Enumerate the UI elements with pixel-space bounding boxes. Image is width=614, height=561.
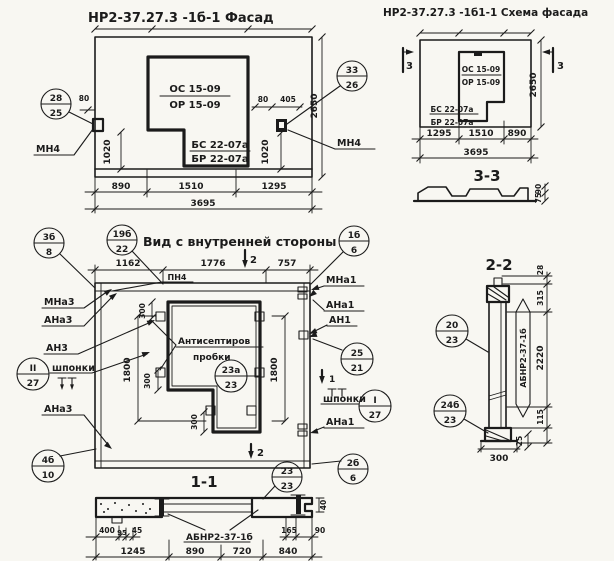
facade-window-mark-bottom: ОР 15-09 [169,100,220,111]
section-1-1-profile [96,495,312,523]
callout-21: 21 [351,364,364,374]
callout-27-right: 27 [369,411,382,421]
label-ana1: АНа1 [326,300,354,311]
dim-80-right: 80 [258,95,268,104]
callout-33: 33 [346,66,359,76]
callout-23-bottom: 23 [281,482,294,492]
section-3-3-profile [418,187,528,201]
callout-26: 26 [346,81,359,91]
schema-view: НР2-37.27.3 -1б1-1 Схема фасада ОС 15-09… [383,7,588,205]
callout-22: 22 [116,245,129,255]
schema-window-mark-top: ОС 15-09 [462,65,500,74]
dim-2220: 2220 [536,345,546,370]
dim-90-profile: 90 [534,184,543,194]
callout-28: 28 [50,94,63,104]
blueprint-canvas: НР2-37.27.3 -1б-1 Фасад ОС 15-09 ОР 15-0… [0,0,614,561]
callout-24b-23: 24б 23 [434,395,488,433]
section-1-1-label: АБНР2-37-1б [186,532,253,543]
callout-25b: 25 [351,349,364,359]
dim-25: 25 [515,436,524,446]
cut-mark-3-right: 3 [542,48,564,72]
callout-3b: 3б [43,232,56,243]
callout-II-27: II 27 [17,358,49,390]
dim-720: 720 [233,547,252,557]
callout-8: 8 [46,248,52,258]
callout-27-left: 27 [27,379,40,389]
facade-title: НР2-37.27.3 -1б-1 Фасад [88,11,274,26]
callout-25-21: 25 21 [308,332,373,375]
dim-90: 90 [315,526,325,535]
section-2-2-title: 2-2 [485,256,512,274]
dim-405: 405 [280,95,296,104]
interior-title: Вид с внутренней стороны [143,234,336,249]
label-mna3: МНа3 [44,297,74,308]
callout-33-26: 33 26 [287,61,367,124]
plugs-note-line1: Антисептиров [178,337,251,347]
callout-25: 25 [50,109,63,119]
cut-1-label: 1 [329,375,335,385]
dim-1510-schema: 1510 [468,129,493,139]
dim-890: 890 [112,182,131,192]
callout-3b-8: 3б 8 [34,228,95,288]
schema-notch [474,52,482,56]
dim-890-schema: 890 [508,129,527,139]
key-symbols-left [58,378,76,390]
callout-II: II [30,364,37,374]
section-1-1-title: 1-1 [190,473,217,491]
callout-24b: 24б [441,400,460,411]
cut-3-right-label: 3 [557,61,564,72]
callout-2b: 2б [347,458,360,469]
dim-80-left: 80 [79,94,89,103]
dim-400: 400 [99,526,115,535]
facade-sill-mark-bottom: БР 22-07а [191,154,248,165]
dim-300-s22: 300 [490,454,509,464]
dim-1020-right: 1020 [261,139,271,164]
dim-2650-facade: 2650 [310,93,320,118]
cut-mark-3-left: 3 [403,48,414,72]
callout-4b-10: 4б 10 [32,449,96,482]
dim-40: 40 [319,500,328,510]
dim-890-s11: 890 [186,547,205,557]
label-an3: АН3 [46,343,68,354]
facade-view: НР2-37.27.3 -1б-1 Фасад ОС 15-09 ОР 15-0… [34,11,375,213]
callout-1b: 1б [348,230,361,241]
callout-20-23: 20 23 [436,315,488,352]
dim-1020-left: 1020 [103,139,113,164]
dim-2650-schema: 2650 [529,72,539,97]
dim-165: 165 [281,526,297,535]
section-3-3-title: 3-3 [473,167,500,185]
dim-840: 840 [279,547,298,557]
interior-opening [168,302,260,432]
section-2-2-label: АБНР2-37-1б [518,328,528,388]
section-2-2: 2-2 АБНР2-37-1б 28 315 2220 115 25 300 2… [434,256,552,464]
callout-10: 10 [42,471,55,481]
facade-window-mark-top: ОС 15-09 [169,84,220,95]
cut-3-left-label: 3 [406,61,413,72]
label-keys-left: шпонки [52,363,95,374]
dim-28: 28 [536,265,545,275]
dim-300-bottom: 300 [190,414,199,430]
dim-1245: 1245 [120,547,145,557]
cut-mark-1-right: 1 [319,370,335,385]
schema-window-mark-bottom: ОР 15-09 [462,78,500,87]
label-ana3: АНа3 [44,315,72,326]
dim-1776: 1776 [200,259,225,269]
anchor-label-mn4-right: МН4 [337,138,361,149]
callout-19b: 19б [113,229,132,240]
section-2-2-body [481,278,517,441]
dim-45: 45 [132,526,142,535]
callout-23a-23: 23а 23 [215,360,259,392]
dim-315: 315 [536,290,545,306]
cut-mark-2-bottom: 2 [248,444,264,459]
dim-300-mid: 300 [143,373,152,389]
dim-3695-schema: 3695 [463,148,488,158]
dim-1295-schema: 1295 [426,129,451,139]
dim-1295: 1295 [261,182,286,192]
cut-2-top-label: 2 [250,255,257,266]
dim-757: 757 [278,259,297,269]
dim-3695: 3695 [190,199,215,209]
strip-label-pn4: ПН4 [168,273,187,282]
label-ana1-low: АНа1 [326,417,354,428]
schema-sill-mark-bottom: БР 22-07а [431,118,474,127]
schema-sill-mark-top: БС 22-07а [431,105,474,114]
callout-I: I [373,396,376,406]
drawing-sheet: НР2-37.27.3 -1б-1 Фасад ОС 15-09 ОР 15-0… [0,0,614,561]
cut-2-bottom-label: 2 [257,448,264,459]
schema-title: НР2-37.27.3 -1б1-1 Схема фасада [383,7,588,19]
callout-4b: 4б [42,455,55,466]
callout-2b-6: 2б 6 [312,454,368,484]
label-ana3-low: АНа3 [44,404,72,415]
interior-view: 3б 8 19б 22 Вид с внутренней стороны 1б … [17,225,391,484]
callout-20: 20 [446,321,459,331]
callout-23b2: 23 [444,416,457,426]
anchor-label-mn4-left: МН4 [36,144,60,155]
callout-I-27: I 27 [359,390,391,422]
dim-1800-right: 1800 [270,357,280,382]
callout-23-top: 23 [281,467,294,477]
dim-115: 115 [536,409,545,425]
callout-6b: 6 [350,474,356,484]
dim-95: 95 [117,529,127,537]
callout-23a: 23а [222,366,241,376]
cut-mark-2-top: 2 [242,250,257,268]
callout-6: 6 [351,246,357,256]
label-mna1: МНа1 [326,275,356,286]
dim-1510: 1510 [178,182,203,192]
facade-sill-mark-top: БС 22-07а [191,140,248,151]
dim-300-top: 300 [138,303,147,319]
dim-1162: 1162 [115,259,140,269]
edge-anchor-plates [298,287,308,436]
section-1-1: 1-1 23 23 АБНР2-37-1б 400 [86,462,328,561]
dim-75-profile: 75 [534,193,543,203]
label-an1: АН1 [329,315,351,326]
callout-23: 23 [225,381,238,391]
callout-23a2: 23 [446,336,459,346]
